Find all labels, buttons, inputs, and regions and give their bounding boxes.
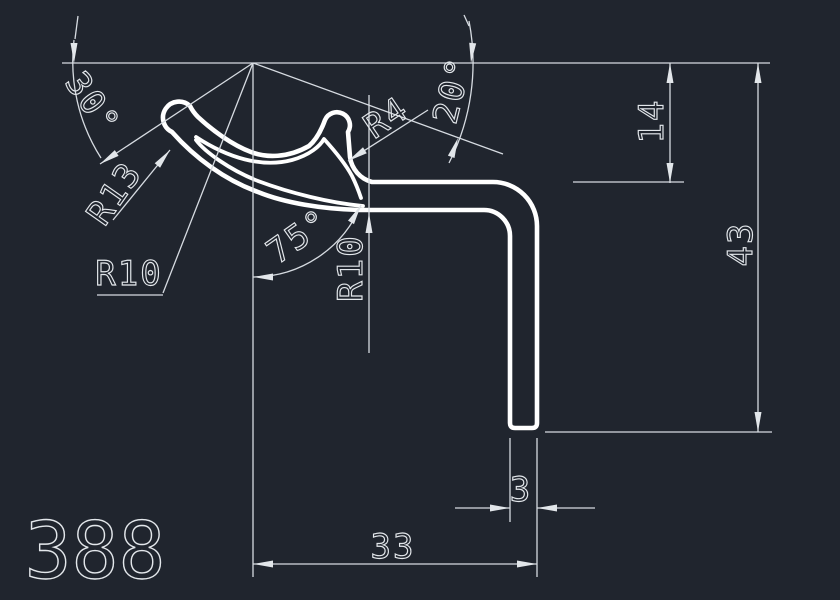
arrow-33-left [253,561,273,568]
part-number: 388 [25,507,166,597]
dim-43-label: 43 [721,222,761,267]
arrow-14-bottom [667,163,674,183]
dim-angle-75-label: 75° [259,201,337,272]
arc-30-tail [75,16,78,39]
arrow-r10-right-up [366,213,373,233]
cad-drawing-view: 30° R13 R10 75° R10 R4 20° 14 43 3 33 38… [0,0,840,600]
arrow-43-bottom [755,412,762,432]
leader-r10-left [163,63,253,293]
arrow-33-right [517,561,537,568]
arrow-43-top [755,63,762,83]
drawing-canvas[interactable]: 30° R13 R10 75° R10 R4 20° 14 43 3 33 38… [0,0,840,600]
arrow-30-arc-top [71,43,78,63]
arrow-r13 [155,150,170,168]
dim-r13-label: R13 [79,154,150,232]
arc-20-tail [464,15,469,26]
dim-r10-left-label: R10 [95,254,162,294]
dimension-layer: 30° R13 R10 75° R10 R4 20° 14 43 3 33 [56,15,772,577]
dim-angle-30-label: 30° [56,64,127,142]
dim-14-label: 14 [632,99,672,144]
dim-r4-label: R4 [357,89,417,147]
dim-r10-right-label: R10 [331,234,371,301]
dim-33-label: 33 [371,527,416,567]
arrow-75-left [253,274,273,281]
dim-3-label: 3 [510,470,532,510]
dim-angle-20-label: 20° [425,53,480,128]
arrow-14-top [667,63,674,83]
arrow-3-right [537,505,557,512]
arrow-3-left [490,505,510,512]
